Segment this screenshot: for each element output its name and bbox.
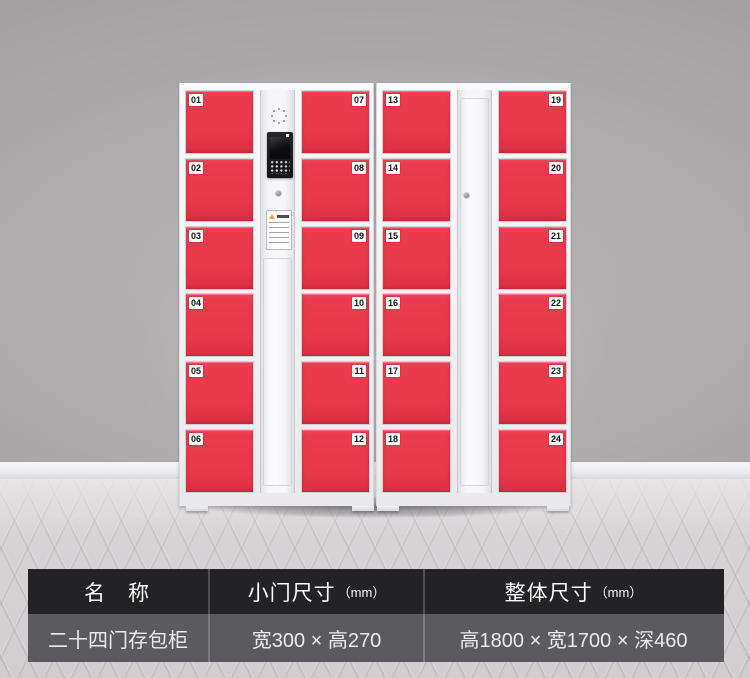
cabinet-foot <box>186 506 208 511</box>
spec-header-overall-size-label: 整体尺寸 <box>505 577 593 607</box>
locker-door: 02 <box>185 158 254 222</box>
locker-door: 07 <box>301 90 370 154</box>
locker-door: 16 <box>382 293 451 357</box>
locker-door: 05 <box>185 361 254 425</box>
spec-header-overall-size: 整体尺寸（mm） <box>423 569 722 614</box>
panel-door-outline <box>460 98 489 486</box>
keyhole-icon <box>464 193 469 198</box>
door-number-label: 10 <box>352 297 366 309</box>
door-number-label: 13 <box>386 94 400 106</box>
door-number-label: 04 <box>189 297 203 309</box>
terminal-keypad <box>271 161 290 174</box>
locker-door: 23 <box>498 361 567 425</box>
door-column-19-24: 192021222324 <box>498 90 567 493</box>
door-number-label: 05 <box>189 365 203 377</box>
door-number-label: 17 <box>386 365 400 377</box>
blank-panel-column <box>457 90 492 493</box>
locker-cabinet-left: 010203040506 070809101112 <box>179 83 374 506</box>
overall-size-value: 高1800 × 宽1700 × 深460 <box>460 624 688 653</box>
door-number-label: 18 <box>386 433 400 445</box>
spec-header-overall-size-unit: （mm） <box>595 582 643 601</box>
locker-door: 08 <box>301 158 370 222</box>
keypad-terminal <box>267 132 293 178</box>
cabinet-foot <box>547 506 569 511</box>
door-column-13-18: 131415161718 <box>382 90 451 493</box>
panel-door-outline <box>263 258 292 486</box>
cabinet-foot <box>352 506 374 511</box>
skirting-board <box>0 462 750 480</box>
locker-door: 13 <box>382 90 451 154</box>
door-column-07-12: 070809101112 <box>301 90 370 493</box>
locker-door: 21 <box>498 226 567 290</box>
locker-cabinet-right: 131415161718 192021222324 <box>376 83 571 506</box>
locker-door: 18 <box>382 429 451 493</box>
locker-door: 24 <box>498 429 567 493</box>
notice-title-placeholder <box>277 215 289 218</box>
door-number-label: 11 <box>352 365 366 377</box>
locker-door: 04 <box>185 293 254 357</box>
wall-background <box>0 0 750 463</box>
speaker-grille-icon <box>278 115 280 117</box>
locker-door: 22 <box>498 293 567 357</box>
locker-door: 12 <box>301 429 370 493</box>
locker-door: 11 <box>301 361 370 425</box>
spec-header-row: 名 称 小门尺寸（mm） 整体尺寸（mm） <box>28 569 724 614</box>
door-number-label: 03 <box>189 230 203 242</box>
spec-value-name: 二十四门存包柜 <box>28 614 208 662</box>
door-number-label: 24 <box>549 433 563 445</box>
door-number-label: 09 <box>352 230 366 242</box>
door-number-label: 20 <box>549 162 563 174</box>
notice-text-lines <box>269 222 289 247</box>
cabinet-foot <box>377 506 399 511</box>
notice-card <box>266 210 292 250</box>
locker-door: 20 <box>498 158 567 222</box>
spec-header-door-size-label: 小门尺寸 <box>248 577 336 607</box>
locker-door: 14 <box>382 158 451 222</box>
product-scene: 010203040506 070809101112 131415161718 <box>0 0 750 678</box>
door-number-label: 07 <box>352 94 366 106</box>
keyhole-icon <box>276 191 281 196</box>
locker-door: 19 <box>498 90 567 154</box>
warning-triangle-icon <box>269 214 275 219</box>
door-number-label: 02 <box>189 162 203 174</box>
locker-door: 15 <box>382 226 451 290</box>
locker-door: 10 <box>301 293 370 357</box>
spec-header-door-size-unit: （mm） <box>338 582 386 601</box>
spec-table: 名 称 小门尺寸（mm） 整体尺寸（mm） 二十四门存包柜 宽300 × 高27… <box>28 569 724 662</box>
door-number-label: 12 <box>352 433 366 445</box>
spec-header-name-label: 名 称 <box>84 577 150 607</box>
locker-door: 03 <box>185 226 254 290</box>
door-number-label: 23 <box>549 365 563 377</box>
terminal-screen <box>270 137 290 159</box>
door-number-label: 01 <box>189 94 203 106</box>
door-number-label: 14 <box>386 162 400 174</box>
locker-door: 17 <box>382 361 451 425</box>
door-number-label: 15 <box>386 230 400 242</box>
spec-value-row: 二十四门存包柜 宽300 × 高270 高1800 × 宽1700 × 深460 <box>28 614 724 662</box>
spec-value-overall-size: 高1800 × 宽1700 × 深460 <box>423 614 722 662</box>
door-size-value: 宽300 × 高270 <box>252 624 382 653</box>
door-number-label: 06 <box>189 433 203 445</box>
locker-door: 06 <box>185 429 254 493</box>
product-name: 二十四门存包柜 <box>48 624 188 653</box>
door-number-label: 16 <box>386 297 400 309</box>
locker-door: 01 <box>185 90 254 154</box>
door-number-label: 08 <box>352 162 366 174</box>
door-number-label: 22 <box>549 297 563 309</box>
control-panel-column <box>260 90 295 493</box>
door-number-label: 19 <box>549 94 563 106</box>
door-number-label: 21 <box>549 230 563 242</box>
spec-header-name: 名 称 <box>28 569 208 614</box>
spec-value-door-size: 宽300 × 高270 <box>208 614 423 662</box>
locker-door: 09 <box>301 226 370 290</box>
door-column-01-06: 010203040506 <box>185 90 254 493</box>
spec-header-door-size: 小门尺寸（mm） <box>208 569 423 614</box>
